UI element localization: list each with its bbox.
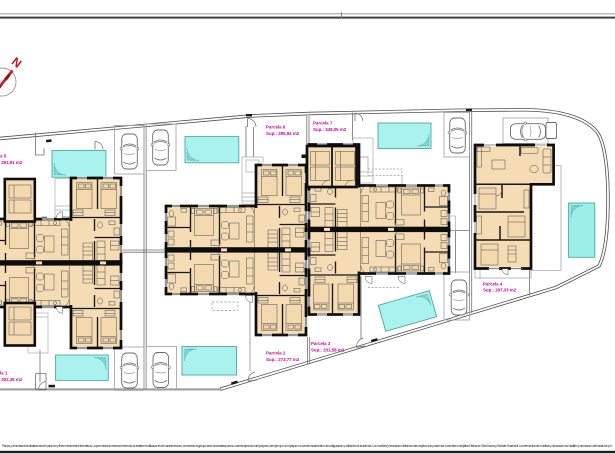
svg-text:Sup.: 348,05 m2: Sup.: 348,05 m2 [313,127,347,132]
svg-text:Parcela 7: Parcela 7 [313,121,333,126]
svg-text:Sup.: 285,94 m2: Sup.: 285,94 m2 [266,131,300,136]
svg-text:Planos y dimensiones indicativ: Planos y dimensiones indicativas al web … [2,444,612,448]
svg-text:Sup.: 302,36 m2: Sup.: 302,36 m2 [0,377,23,382]
svg-text:Parcela 5: Parcela 5 [0,154,7,159]
svg-text:Sup.: 291,91 m2: Sup.: 291,91 m2 [0,160,23,165]
svg-text:Sup.: 273,77 m2: Sup.: 273,77 m2 [266,357,300,362]
svg-text:Parcela 1: Parcela 1 [0,371,8,376]
svg-text:Sup.: 231,58 m2: Sup.: 231,58 m2 [311,348,345,353]
svg-text:Parcela 4: Parcela 4 [483,281,503,286]
svg-text:Parcela 2: Parcela 2 [266,351,286,356]
svg-text:Parcela 6: Parcela 6 [266,125,286,130]
svg-text:Parcela 3: Parcela 3 [311,341,331,346]
svg-text:Sup.: 297,33 m2: Sup.: 297,33 m2 [483,288,517,293]
